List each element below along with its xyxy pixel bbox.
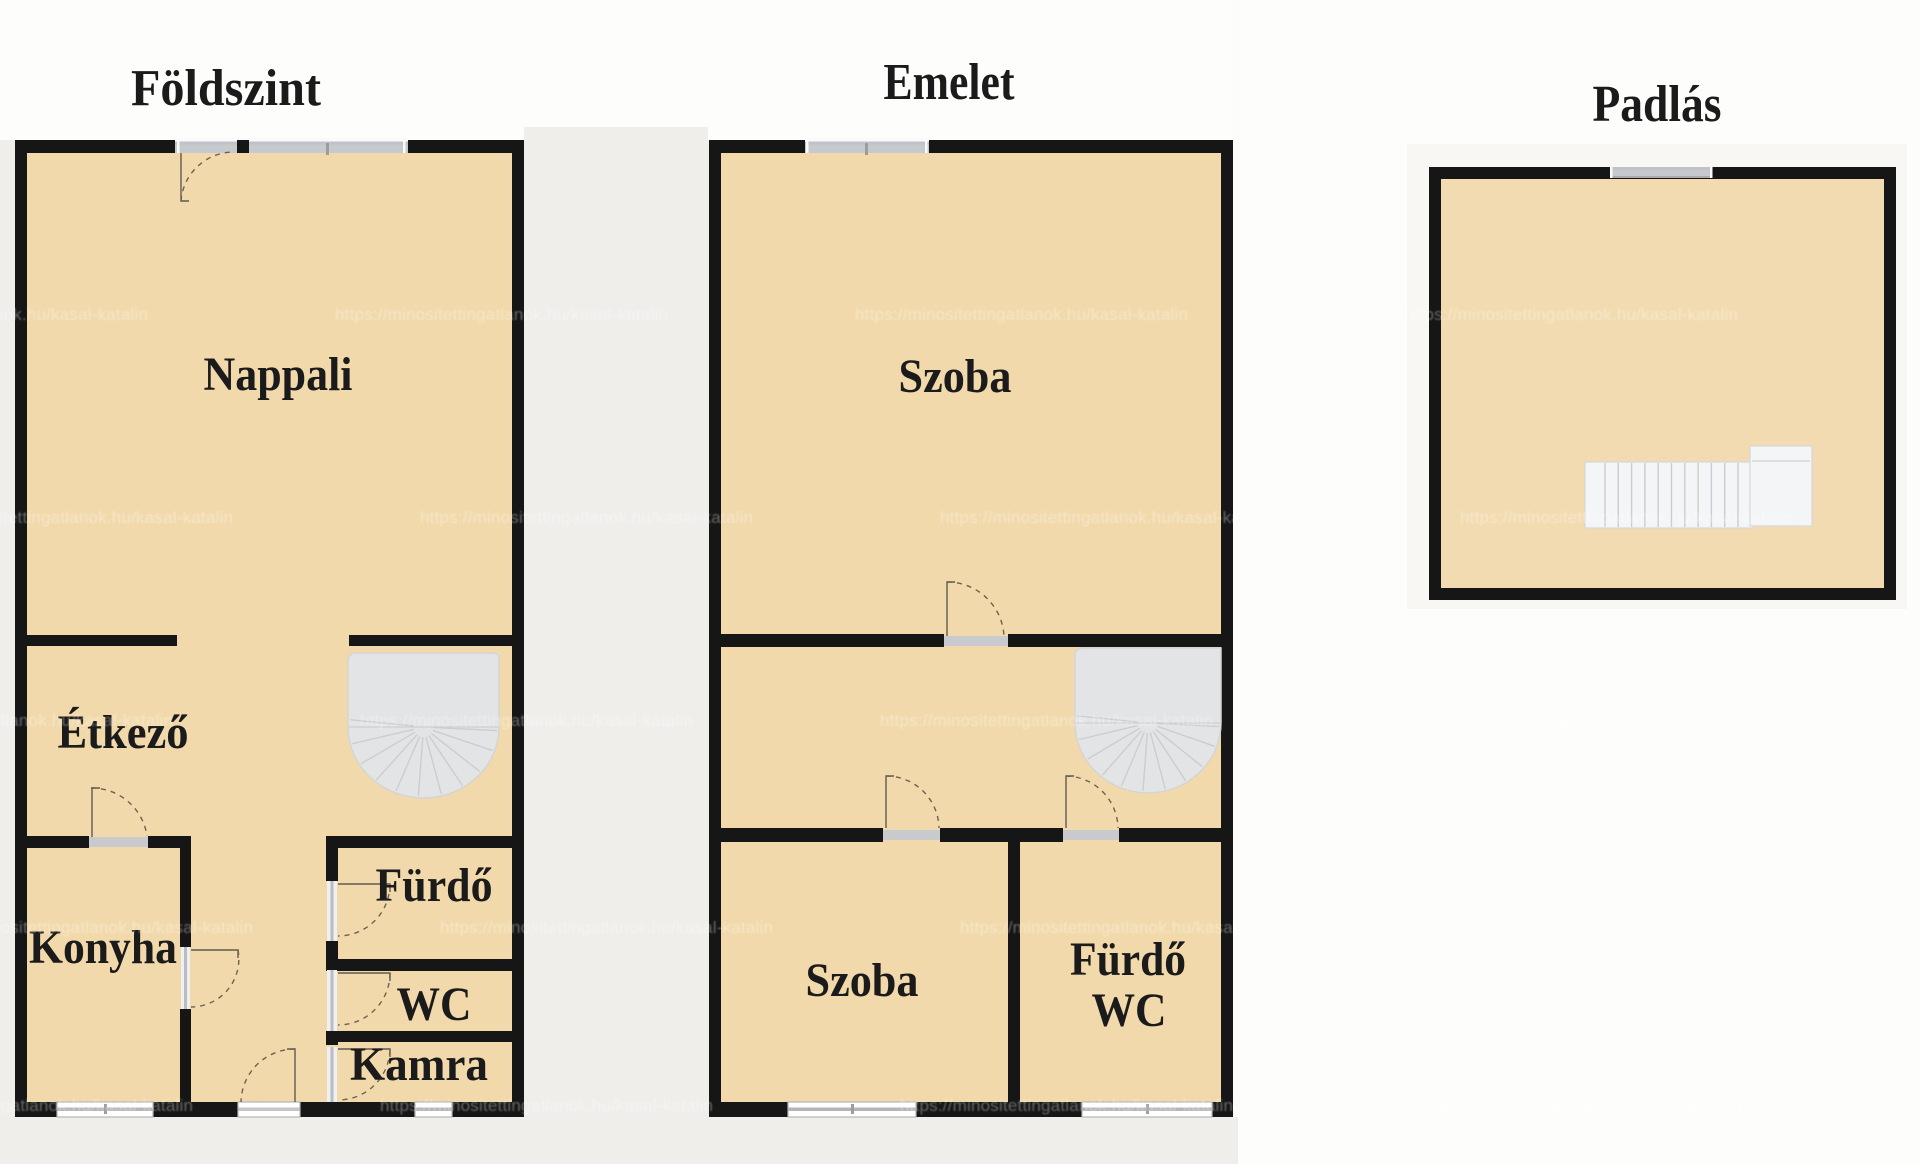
- svg-text:Kamra: Kamra: [350, 1038, 488, 1091]
- svg-text:https://minositettingatlanok.h: https://minositettingatlanok.hu/kasal-ka…: [1405, 305, 1738, 324]
- svg-text:https://minositettingatlanok.h: https://minositettingatlanok.hu/kasal-ka…: [335, 305, 668, 324]
- svg-text:Földszint: Földszint: [131, 60, 322, 117]
- svg-text:https://minositettingatlanok.h: https://minositettingatlanok.hu/kasal-ka…: [1480, 918, 1813, 937]
- svg-text:https://minositettingatlanok.h: https://minositettingatlanok.hu/kasal-ka…: [900, 1096, 1233, 1115]
- svg-text:Szoba: Szoba: [806, 954, 919, 1007]
- svg-text:Fürdő: Fürdő: [376, 859, 493, 912]
- svg-text:https://minositettingatlanok.h: https://minositettingatlanok.hu/kasal-ka…: [0, 1096, 193, 1115]
- svg-text:https://minositettingatlanok.h: https://minositettingatlanok.hu/kasal-ka…: [420, 508, 753, 527]
- svg-text:https://minositettingatlanok.h: https://minositettingatlanok.hu/kasal-ka…: [855, 305, 1188, 324]
- svg-text:https://minositettingatlanok.h: https://minositettingatlanok.hu/kasal-ka…: [1460, 508, 1793, 527]
- svg-text:https://minositettingatlanok.h: https://minositettingatlanok.hu/kasal-ka…: [960, 918, 1293, 937]
- svg-text:Nappali: Nappali: [204, 348, 353, 401]
- svg-text:https://minositettingatlanok.h: https://minositettingatlanok.hu/kasal-ka…: [880, 711, 1213, 730]
- svg-text:Fürdő: Fürdő: [1070, 933, 1186, 986]
- svg-text:Emelet: Emelet: [884, 54, 1016, 111]
- svg-text:https://minositettingatlanok.h: https://minositettingatlanok.hu/kasal-ka…: [0, 508, 233, 527]
- svg-text:https://minositettingatlanok.h: https://minositettingatlanok.hu/kasal-ka…: [0, 918, 253, 937]
- svg-text:Szoba: Szoba: [899, 350, 1012, 403]
- svg-text:Padlás: Padlás: [1593, 76, 1722, 133]
- svg-text:https://minositettingatlanok.h: https://minositettingatlanok.hu/kasal-ka…: [380, 1096, 713, 1115]
- svg-text:https://minositettingatlanok.h: https://minositettingatlanok.hu/kasal-ka…: [1420, 1096, 1753, 1115]
- svg-text:WC: WC: [1092, 984, 1167, 1037]
- svg-text:https://minositettingatlanok.h: https://minositettingatlanok.hu/kasal-ka…: [360, 711, 693, 730]
- svg-text:https://minositettingatlanok.h: https://minositettingatlanok.hu/kasal-ka…: [0, 711, 173, 730]
- svg-text:https://minositettingatlanok.h: https://minositettingatlanok.hu/kasal-ka…: [440, 918, 773, 937]
- svg-text:WC: WC: [397, 978, 472, 1031]
- svg-text:https://minositettingatlanok.h: https://minositettingatlanok.hu/kasal-ka…: [940, 508, 1273, 527]
- svg-text:https://minositettingatlanok.h: https://minositettingatlanok.hu/kasal-ka…: [1400, 711, 1733, 730]
- svg-text:https://minositettingatlanok.h: https://minositettingatlanok.hu/kasal-ka…: [0, 305, 148, 324]
